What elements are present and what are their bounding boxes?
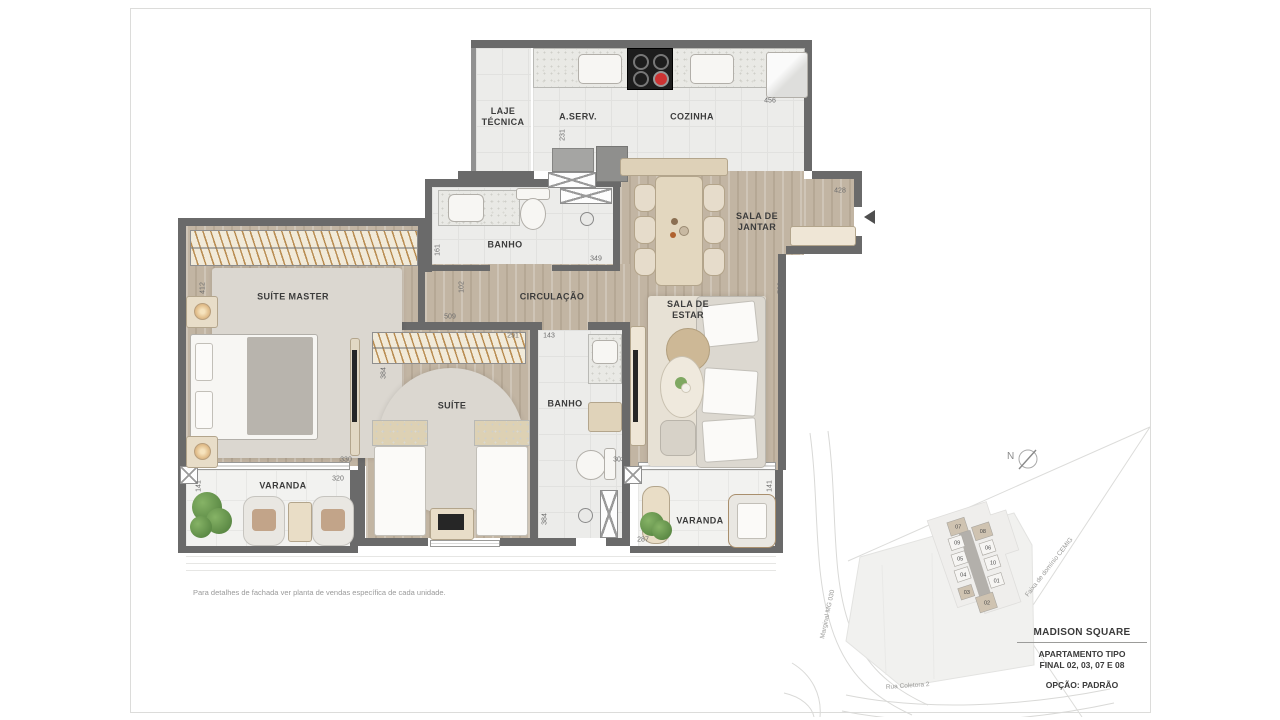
unit-02: 02 xyxy=(984,600,990,606)
banho2-toilet-bowl xyxy=(576,450,606,480)
wall xyxy=(471,48,476,171)
table-decor xyxy=(671,218,678,225)
unit-04: 04 xyxy=(960,572,966,578)
dim-428: 428 xyxy=(834,188,846,195)
wall xyxy=(458,171,534,179)
pillar-right xyxy=(624,466,642,484)
wall xyxy=(854,179,862,207)
dining-chair xyxy=(703,216,725,244)
pouf xyxy=(660,420,696,456)
wall xyxy=(178,226,186,546)
apartment-type-line: APARTAMENTO TIPO xyxy=(1017,649,1147,660)
facade-ledge xyxy=(186,556,776,572)
unit-10: 10 xyxy=(990,561,996,567)
dim-102: 102 xyxy=(459,281,466,293)
wall xyxy=(613,187,620,271)
unit-finals-line: FINAL 02, 03, 07 E 08 xyxy=(1017,660,1147,671)
option-line: OPÇÃO: PADRÃO xyxy=(1017,680,1147,691)
plant-icon xyxy=(190,516,212,538)
floor-plan-sheet: LAJE TÉCNICA A.SERV. COZINHA BANHO SALA … xyxy=(0,0,1280,720)
twin-bed xyxy=(372,420,428,538)
banho1-toilet-bowl xyxy=(520,198,546,230)
title-block: MADISON SQUARE APARTAMENTO TIPO FINAL 02… xyxy=(1017,627,1147,691)
dim-231: 231 xyxy=(560,129,567,141)
room-label-sala-estar: SALA DE ESTAR xyxy=(667,299,709,322)
dining-chair xyxy=(634,216,656,244)
dim-723: 723 xyxy=(778,282,785,294)
room-label-circulacao: CIRCULAÇÃO xyxy=(520,291,585,302)
wall xyxy=(500,538,576,546)
banho2-shower-glass xyxy=(600,490,618,538)
plant-icon xyxy=(652,520,672,540)
room-label-laje-tecnica: LAJE TÉCNICA xyxy=(482,106,525,129)
laundry-sink xyxy=(578,54,622,84)
unit-01: 01 xyxy=(994,578,1000,584)
unit-06: 06 xyxy=(985,545,991,551)
dim-330: 330 xyxy=(340,457,352,464)
sofa xyxy=(696,296,766,468)
dim-143: 143 xyxy=(543,333,555,340)
tv-icon xyxy=(633,350,638,422)
wall xyxy=(606,538,630,546)
dim-141-right: 141 xyxy=(767,480,774,492)
unit-07: 07 xyxy=(955,525,961,531)
washer xyxy=(552,148,594,172)
dim-509: 509 xyxy=(444,314,456,321)
lamp-icon xyxy=(194,443,211,460)
tv-icon xyxy=(352,350,357,422)
suite2-wardrobe xyxy=(372,332,526,364)
unit-05: 05 xyxy=(957,557,963,563)
peninsula-counter xyxy=(620,158,728,176)
room-label-varanda-left: VARANDA xyxy=(259,480,306,491)
wall xyxy=(786,246,862,254)
wall xyxy=(178,546,358,553)
dining-chair xyxy=(703,248,725,276)
banho2-sink xyxy=(592,340,618,364)
table-decor xyxy=(670,232,676,238)
stove-icon xyxy=(627,48,673,90)
wall xyxy=(588,322,630,330)
unit-08: 08 xyxy=(980,529,986,535)
banho2-shower-head-icon xyxy=(578,508,593,523)
dining-chair xyxy=(634,248,656,276)
project-name: MADISON SQUARE xyxy=(1017,627,1147,638)
banho1-sink xyxy=(448,194,484,222)
wall xyxy=(552,265,620,271)
wall xyxy=(425,187,432,272)
suite2-bottom-window xyxy=(430,540,500,547)
room-label-sala-jantar: SALA DE JANTAR xyxy=(736,211,778,234)
varanda-armchair xyxy=(243,496,285,546)
lamp-icon xyxy=(194,303,211,320)
room-label-varanda-right: VARANDA xyxy=(676,515,723,526)
varanda-side-table xyxy=(288,502,312,542)
room-label-suite: SUÍTE xyxy=(438,400,467,411)
dim-349: 349 xyxy=(590,256,602,263)
table-decor xyxy=(679,226,689,236)
kitchen-sink xyxy=(690,54,734,84)
laundry-cabinet xyxy=(548,172,596,188)
coffee-table xyxy=(660,356,704,418)
compass-north-label: N xyxy=(1007,451,1014,462)
title-divider xyxy=(1017,642,1147,643)
dim-384-banho: 384 xyxy=(542,513,549,525)
dim-303: 303 xyxy=(613,457,625,464)
entry-console xyxy=(790,226,856,246)
dim-287: 287 xyxy=(637,537,649,544)
banho2-toilet-tank xyxy=(604,448,616,480)
banho1-shower-head-icon xyxy=(580,212,594,226)
banho1-shower-shelf xyxy=(560,188,612,204)
room-label-banho2: BANHO xyxy=(548,398,583,409)
disclaimer-text: Para detalhes de fachada ver planta de v… xyxy=(193,588,446,597)
dim-412: 412 xyxy=(200,282,207,294)
wall xyxy=(530,330,538,546)
dim-141-left: 141 xyxy=(196,480,203,492)
dim-456: 456 xyxy=(764,98,776,105)
banho2-cabinet xyxy=(588,402,622,432)
road-label-marginal: Marginal MG 030 xyxy=(819,589,836,640)
twin-bed xyxy=(474,420,530,538)
varanda-armchair xyxy=(312,496,354,546)
road-label-coletora: Rua Coletora 2 xyxy=(886,681,930,691)
entrance-arrow-icon xyxy=(864,210,875,224)
suite-master-bed xyxy=(190,334,318,440)
dim-161: 161 xyxy=(435,244,442,256)
wall xyxy=(471,40,812,48)
dim-320: 320 xyxy=(332,476,344,483)
wall xyxy=(178,218,425,226)
compass: N xyxy=(1007,450,1037,469)
tv-icon xyxy=(438,514,464,530)
varanda-armchair xyxy=(728,494,776,548)
fridge xyxy=(766,52,808,98)
room-label-banho1: BANHO xyxy=(488,239,523,250)
room-label-suite-master: SUÍTE MASTER xyxy=(257,291,329,302)
dining-chair xyxy=(703,184,725,212)
wall xyxy=(358,538,428,546)
dining-chair xyxy=(634,184,656,212)
wall xyxy=(812,171,862,179)
unit-03: 03 xyxy=(964,590,970,596)
room-label-cozinha: COZINHA xyxy=(670,111,714,122)
unit-09: 09 xyxy=(954,541,960,547)
wall xyxy=(425,265,490,271)
dim-384-suite: 384 xyxy=(381,367,388,379)
dim-291: 291 xyxy=(507,333,519,340)
room-label-aserv: A.SERV. xyxy=(559,111,597,122)
wall xyxy=(622,330,630,546)
suite-master-wardrobe xyxy=(190,230,418,266)
wall xyxy=(418,226,425,322)
